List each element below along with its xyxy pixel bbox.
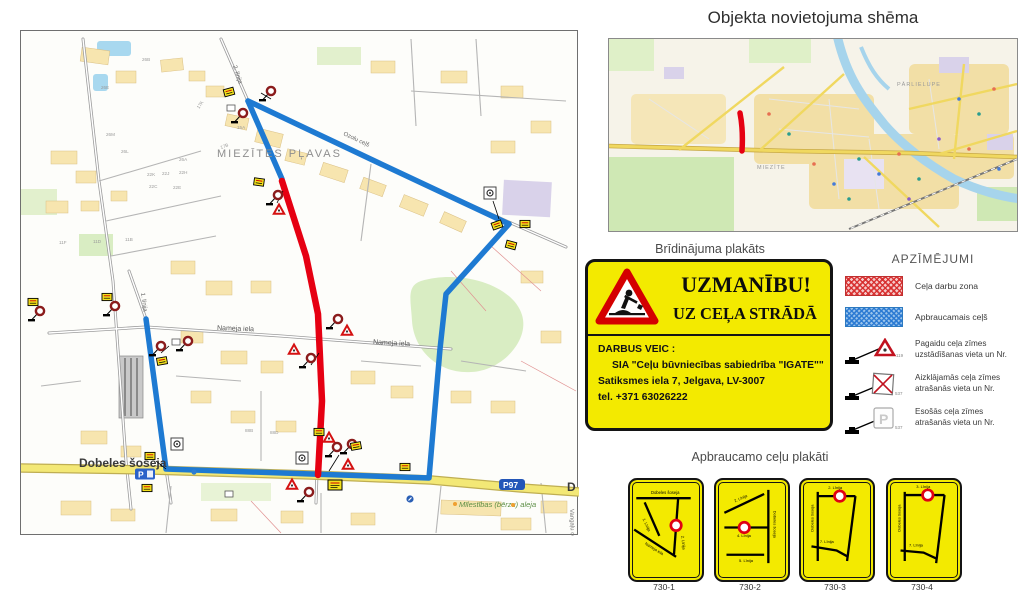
district-label: PĀRLIELUPE — [897, 81, 941, 88]
detour-posters-title: Apbraucamo ceļu plakāti — [640, 450, 880, 464]
temporary-sign-icon: 119 — [843, 338, 907, 368]
industrial-area — [502, 180, 552, 217]
svg-text:26B: 26B — [142, 57, 150, 62]
svg-text:7. Līnija: 7. Līnija — [909, 542, 924, 547]
svg-text:26M: 26M — [106, 132, 115, 137]
detour-poster-id: 730-1 — [628, 582, 700, 592]
contractor-intro: DARBUS VEIC : — [598, 342, 824, 358]
main-map-panel: 2. līnija Ozolu ceļš MIEZĪTES PĻAVAS Nam… — [20, 30, 578, 535]
parking-badge-icon: P — [135, 469, 155, 480]
legend-item-temporary-sign: 119 Pagaidu ceļa zīmesuzstādīšanas vieta… — [843, 338, 1023, 370]
svg-text:537: 537 — [895, 391, 903, 396]
poi-dot — [511, 503, 515, 507]
svg-text:2. Līnija: 2. Līnija — [680, 535, 687, 550]
svg-text:3. Līnija: 3. Līnija — [916, 484, 931, 489]
info-board-icon — [156, 357, 167, 366]
info-board-icon — [142, 484, 152, 491]
street-label: 2. līnija — [231, 65, 243, 86]
warning-poster-title: Brīdinājuma plakāts — [585, 242, 835, 256]
svg-text:5. Līnija: 5. Līnija — [739, 558, 754, 563]
water-areas — [93, 41, 131, 91]
legend-item-existing-sign: P 537 Esošās ceļa zīmesatrašanās vieta u… — [843, 406, 1023, 440]
detour-poster-730-2: Dobeles šoseja 4. Līnija 2. Līnija 5. Lī… — [714, 478, 790, 582]
svg-text:22J: 22J — [162, 171, 169, 176]
overview-map-canvas: PĀRLIELUPE MIEZĪTE — [609, 39, 1017, 231]
svg-text:Dobeles šoseja: Dobeles šoseja — [651, 490, 680, 495]
svg-text:11D: 11D — [93, 239, 102, 244]
street-label: Nameja iela — [373, 339, 410, 348]
covered-sign-icon — [172, 339, 180, 345]
detour-diagram-1: Dobeles šoseja 1. Līnija Nameja iela 2. … — [630, 480, 697, 575]
street-label: Nameja iela — [217, 325, 254, 333]
legend-label: Esošās ceļa zīmesatrašanās vieta un Nr. — [915, 406, 995, 429]
svg-text:1. Līnija: 1. Līnija — [642, 517, 653, 532]
info-board-icon — [520, 220, 530, 227]
legend-item-work-zone: Ceļa darbu zona — [843, 276, 1023, 298]
info-board-icon — [102, 293, 112, 300]
info-board-icon — [505, 240, 517, 250]
warning-triangle-icon — [287, 480, 297, 489]
legend-label: Pagaidu ceļa zīmesuzstādīšanas vieta un … — [915, 338, 1007, 361]
warning-poster-body: DARBUS VEIC : SIA "Ceļu būvniecības sabi… — [598, 342, 824, 406]
legend-item-covered-sign: 537 Aizklājamās ceļa zīmesatrašanās viet… — [843, 372, 1023, 406]
detour-diagram-4: Dobeles šoseja 3. Līnija 7. Līnija — [888, 480, 955, 575]
overview-title: Objekta novietojuma shēma — [608, 8, 1018, 28]
route-badge-p97: P97 — [499, 479, 525, 490]
contractor-name: SIA "Ceļu būvniecības sabiedrība "IGATE"… — [598, 358, 824, 374]
warning-triangle-icon — [343, 460, 353, 469]
roadworks-triangle-icon — [595, 267, 659, 327]
temporary-sign-icon — [299, 354, 315, 369]
contractor-address: Satiksmes iela 7, Jelgava, LV-3007 — [598, 374, 824, 390]
traffic-scheme-sheet: 2. līnija Ozolu ceļš MIEZĪTES PĻAVAS Nam… — [0, 0, 1024, 600]
temporary-sign-icon — [259, 87, 275, 102]
svg-text:11F: 11F — [59, 240, 67, 245]
legend-label: Aizklājamās ceļa zīmesatrašanās vieta un… — [915, 372, 1000, 395]
legend-item-detour: Apbraucamais ceļš — [843, 307, 1023, 329]
area-label: MIEZĪTES PĻAVAS — [217, 148, 342, 160]
poi-dot — [453, 502, 457, 506]
svg-text:4. Līnija: 4. Līnija — [737, 533, 752, 538]
svg-text:88D: 88D — [270, 430, 279, 435]
closure-circle — [671, 520, 681, 530]
legend-title: APZĪMĒJUMI — [843, 252, 1023, 266]
svg-text:22K: 22K — [147, 172, 156, 177]
svg-text:11B: 11B — [125, 237, 133, 242]
warning-poster-head: UZMANĪBU! UZ CEĻA STRĀDĀ — [588, 262, 830, 336]
info-board-icon — [491, 220, 503, 230]
svg-text:22H: 22H — [179, 170, 187, 175]
svg-text:17K: 17K — [196, 99, 205, 109]
detour-diagram-3: Dobeles šoseja 2. Līnija 7. Līnija — [801, 480, 868, 575]
svg-text:15A: 15A — [237, 125, 246, 130]
info-board-icon — [314, 428, 324, 435]
svg-text:Dobeles šoseja: Dobeles šoseja — [897, 504, 902, 532]
svg-text:P: P — [879, 411, 888, 427]
street-label: Mīlestības (bērzu) aleja — [459, 500, 536, 509]
legend: APZĪMĒJUMI Ceļa darbu zona Apbraucamais … — [843, 250, 1023, 438]
info-board-icon — [28, 298, 38, 305]
svg-text:22C: 22C — [149, 184, 158, 189]
existing-sign-icon: P 537 — [843, 406, 907, 438]
svg-text:26A: 26A — [179, 157, 188, 162]
closure-circle — [835, 491, 845, 501]
detour-diagram-2: Dobeles šoseja 4. Līnija 2. Līnija 5. Lī… — [716, 480, 783, 575]
detour-poster-id: 730-2 — [714, 582, 786, 592]
overview-map-panel: PĀRLIELUPE MIEZĪTE — [608, 38, 1018, 232]
covered-sign-icon — [227, 105, 235, 111]
info-board-icon — [328, 480, 342, 490]
detour-poster-730-1: Dobeles šoseja 1. Līnija Nameja iela 2. … — [628, 478, 704, 582]
svg-text:26L: 26L — [121, 149, 129, 154]
detour-poster-id: 730-4 — [886, 582, 958, 592]
temporary-sign-icon — [297, 488, 313, 503]
covered-sign-icon: 537 — [843, 372, 907, 404]
info-board-icon — [350, 442, 361, 451]
svg-text:P: P — [138, 470, 144, 480]
warning-poster: UZMANĪBU! UZ CEĻA STRĀDĀ DARBUS VEIC : S… — [585, 259, 833, 431]
main-map-canvas: 2. līnija Ozolu ceļš MIEZĪTES PĻAVAS Nam… — [21, 31, 579, 536]
mandatory-sign-icon — [406, 495, 414, 503]
svg-text:Dobeles šoseja: Dobeles šoseja — [810, 504, 815, 532]
svg-text:119: 119 — [896, 353, 904, 358]
covered-sign-icon — [225, 491, 233, 497]
svg-text:26E: 26E — [101, 85, 109, 90]
existing-sign-icon — [484, 187, 496, 199]
svg-text:7. Līnija: 7. Līnija — [820, 539, 835, 544]
info-board-icon — [400, 463, 410, 470]
closure-circle — [923, 490, 933, 500]
contractor-phone: tel. +371 63026222 — [598, 390, 824, 406]
info-board-icon — [145, 452, 155, 459]
street-label: Vangaļu ceļš — [568, 509, 575, 536]
legend-label: Apbraucamais ceļš — [915, 312, 988, 322]
temporary-sign-icon — [326, 315, 342, 330]
info-board-icon — [254, 178, 265, 187]
info-board-icon — [223, 87, 235, 97]
closure-circle — [739, 522, 749, 532]
route-dot — [191, 469, 196, 474]
existing-sign-icon — [296, 452, 308, 464]
svg-text:88B: 88B — [245, 428, 253, 433]
district-label: MIEZĪTE — [757, 164, 786, 171]
river-branch — [861, 47, 889, 89]
detour-poster-730-3: Dobeles šoseja 2. Līnija 7. Līnija — [799, 478, 875, 582]
existing-sign-icon — [171, 438, 183, 450]
object-location-marker — [740, 113, 742, 151]
work-zone-swatch — [845, 276, 903, 296]
svg-text:22E: 22E — [173, 185, 181, 190]
svg-text:Dobeles šoseja: Dobeles šoseja — [773, 511, 778, 539]
svg-text:P97: P97 — [503, 480, 518, 490]
detour-poster-730-4: Dobeles šoseja 3. Līnija 7. Līnija — [886, 478, 962, 582]
highway-label-cont: D — [567, 480, 576, 494]
legend-label: Ceļa darbu zona — [915, 281, 978, 291]
warning-triangle-icon — [324, 433, 334, 442]
temporary-sign-icon — [28, 307, 44, 322]
warning-heading-2: UZ CEĻA STRĀDĀ — [658, 304, 832, 324]
warning-heading-1: UZMANĪBU! — [664, 272, 828, 298]
warning-triangle-icon — [274, 205, 284, 214]
detour-swatch — [845, 307, 903, 327]
warning-triangle-icon — [289, 345, 299, 354]
temporary-sign-icon — [266, 191, 282, 206]
svg-text:2. Līnija: 2. Līnija — [828, 485, 843, 490]
detour-poster-id: 730-3 — [799, 582, 871, 592]
warning-triangle-icon — [342, 326, 352, 335]
svg-text:537: 537 — [895, 425, 903, 430]
